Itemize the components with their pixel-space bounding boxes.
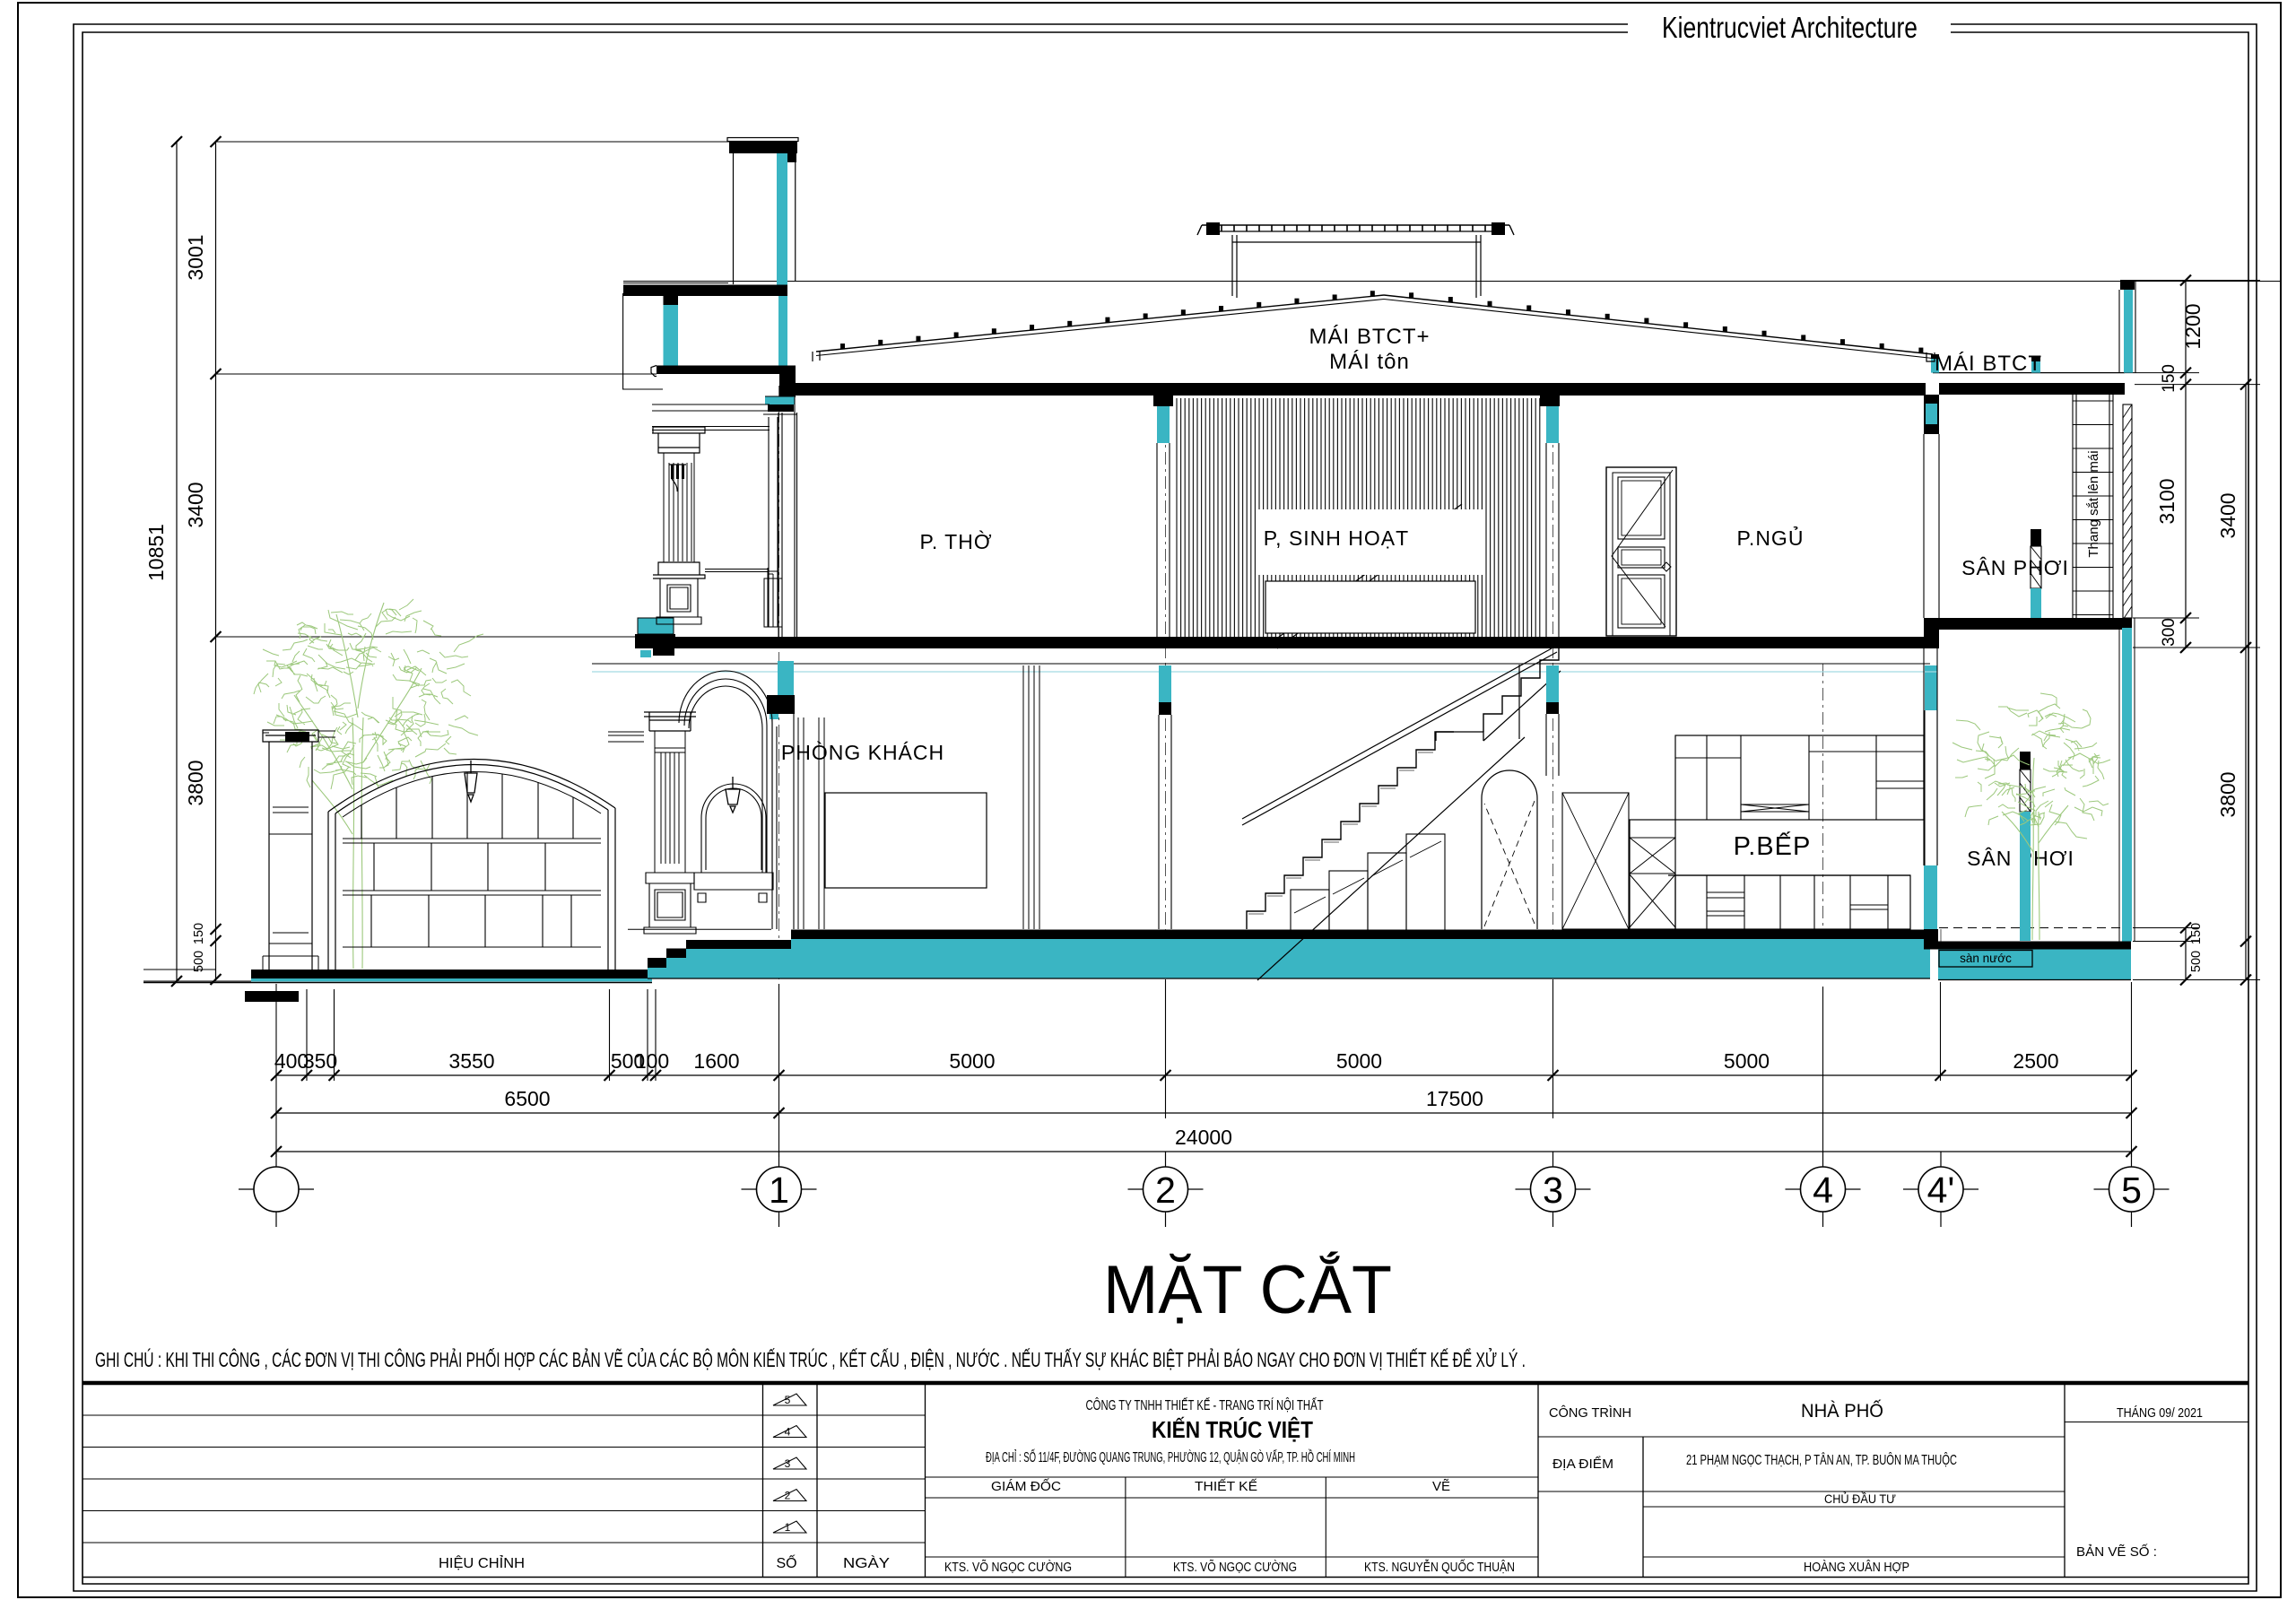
svg-text:MÁI tôn: MÁI tôn bbox=[1329, 350, 1410, 374]
svg-text:THÁNG 09/ 2021: THÁNG 09/ 2021 bbox=[2117, 1405, 2203, 1421]
svg-text:500: 500 bbox=[192, 951, 206, 972]
svg-text:CÔNG TY TNHH THIẾT KẾ - TRANG: CÔNG TY TNHH THIẾT KẾ - TRANG TRÍ NỘI TH… bbox=[1086, 1396, 1324, 1413]
svg-text:P.NGỦ: P.NGỦ bbox=[1737, 525, 1805, 550]
svg-text:SÂN PHƠI: SÂN PHƠI bbox=[1961, 556, 2069, 579]
svg-text:NHÀ PHỐ: NHÀ PHỐ bbox=[1801, 1400, 1883, 1422]
svg-text:MÁI BTCT+: MÁI BTCT+ bbox=[1309, 325, 1430, 349]
svg-text:BẢN VẼ SỐ :: BẢN VẼ SỐ : bbox=[2076, 1543, 2157, 1560]
svg-text:4': 4' bbox=[1927, 1170, 1955, 1211]
svg-text:P, SINH HOẠT: P, SINH HOẠT bbox=[1264, 526, 1409, 550]
svg-text:3001: 3001 bbox=[184, 234, 207, 280]
svg-text:CÔNG TRÌNH: CÔNG TRÌNH bbox=[1549, 1405, 1631, 1421]
svg-text:P. THỜ: P. THỜ bbox=[919, 530, 992, 553]
svg-text:2: 2 bbox=[1155, 1170, 1176, 1211]
svg-text:CHỦ ĐẦU TƯ: CHỦ ĐẦU TƯ bbox=[1824, 1491, 1896, 1506]
svg-text:5: 5 bbox=[2121, 1170, 2142, 1211]
svg-text:500: 500 bbox=[2189, 951, 2204, 972]
svg-text:150: 150 bbox=[2160, 364, 2179, 393]
svg-text:KTS. NGUYỄN QUỐC THUẬN: KTS. NGUYỄN QUỐC THUẬN bbox=[1364, 1559, 1515, 1575]
svg-text:1600: 1600 bbox=[693, 1049, 739, 1073]
svg-text:3550: 3550 bbox=[448, 1049, 494, 1073]
svg-text:GIÁM ĐỐC: GIÁM ĐỐC bbox=[991, 1478, 1061, 1494]
svg-text:Kientrucviet Architecture: Kientrucviet Architecture bbox=[1662, 11, 1918, 44]
svg-text:5000: 5000 bbox=[949, 1049, 995, 1073]
svg-text:Thang sắt lên mái: Thang sắt lên mái bbox=[2086, 450, 2101, 557]
svg-text:21 PHẠM NGỌC THẠCH, P TÂN AN,: 21 PHẠM NGỌC THẠCH, P TÂN AN, TP. BUÔN M… bbox=[1686, 1453, 1957, 1468]
svg-text:1200: 1200 bbox=[2181, 303, 2205, 349]
svg-text:NGÀY: NGÀY bbox=[843, 1554, 890, 1571]
svg-text:1: 1 bbox=[769, 1170, 789, 1211]
svg-text:5: 5 bbox=[785, 1394, 791, 1406]
svg-text:3: 3 bbox=[785, 1457, 791, 1470]
svg-text:THIẾT KẾ: THIẾT KẾ bbox=[1195, 1479, 1257, 1494]
svg-text:ĐỊA ĐIỂM: ĐỊA ĐIỂM bbox=[1552, 1456, 1613, 1472]
svg-text:17500: 17500 bbox=[1426, 1087, 1483, 1110]
svg-text:24000: 24000 bbox=[1175, 1126, 1232, 1149]
svg-text:3100: 3100 bbox=[2155, 478, 2179, 524]
svg-text:100: 100 bbox=[635, 1049, 669, 1073]
svg-text:300: 300 bbox=[2160, 618, 2179, 647]
svg-text:3: 3 bbox=[1543, 1170, 1563, 1211]
svg-text:MẶT CẮT: MẶT CẮT bbox=[1103, 1251, 1392, 1328]
svg-text:VẼ: VẼ bbox=[1432, 1479, 1450, 1494]
svg-text:3800: 3800 bbox=[2216, 771, 2239, 817]
svg-text:5000: 5000 bbox=[1336, 1049, 1382, 1073]
svg-text:KTS. VÕ NGỌC CƯỜNG: KTS. VÕ NGỌC CƯỜNG bbox=[1173, 1560, 1297, 1575]
svg-text:5000: 5000 bbox=[1724, 1049, 1770, 1073]
svg-text:PHÒNG KHÁCH: PHÒNG KHÁCH bbox=[781, 741, 944, 764]
svg-text:4: 4 bbox=[785, 1426, 791, 1439]
svg-text:3400: 3400 bbox=[184, 482, 207, 527]
svg-text:2: 2 bbox=[785, 1490, 791, 1502]
svg-text:10851: 10851 bbox=[144, 524, 168, 581]
svg-text:150: 150 bbox=[192, 923, 206, 944]
svg-text:sàn nước: sàn nước bbox=[1960, 952, 2012, 965]
svg-text:ĐỊA CHỈ : SỐ 11/4F, ĐƯỜNG QUAN: ĐỊA CHỈ : SỐ 11/4F, ĐƯỜNG QUANG TRUNG, P… bbox=[986, 1448, 1355, 1465]
svg-text:HOÀNG XUÂN HỢP: HOÀNG XUÂN HỢP bbox=[1804, 1560, 1909, 1575]
svg-text:MÁI BTCT: MÁI BTCT bbox=[1935, 352, 2042, 376]
svg-text:HIỆU CHỈNH: HIỆU CHỈNH bbox=[439, 1554, 525, 1571]
svg-text:KTS. VÕ NGỌC CƯỜNG: KTS. VÕ NGỌC CƯỜNG bbox=[944, 1560, 1072, 1575]
svg-text:4: 4 bbox=[1813, 1170, 1833, 1211]
svg-text:P.BẾP: P.BẾP bbox=[1734, 830, 1812, 861]
svg-text:6500: 6500 bbox=[504, 1087, 550, 1110]
svg-text:3400: 3400 bbox=[2216, 492, 2239, 538]
svg-text:350: 350 bbox=[303, 1049, 337, 1073]
svg-text:2500: 2500 bbox=[2013, 1049, 2058, 1073]
svg-text:SỐ: SỐ bbox=[776, 1553, 796, 1571]
svg-text:3800: 3800 bbox=[184, 760, 207, 805]
svg-text:GHI CHÚ : KHI THI CÔNG , CÁC Đ: GHI CHÚ : KHI THI CÔNG , CÁC ĐƠN VỊ THI … bbox=[95, 1346, 1526, 1371]
svg-text:KIẾN TRÚC VIỆT: KIẾN TRÚC VIỆT bbox=[1152, 1416, 1313, 1443]
svg-text:1: 1 bbox=[785, 1521, 791, 1534]
